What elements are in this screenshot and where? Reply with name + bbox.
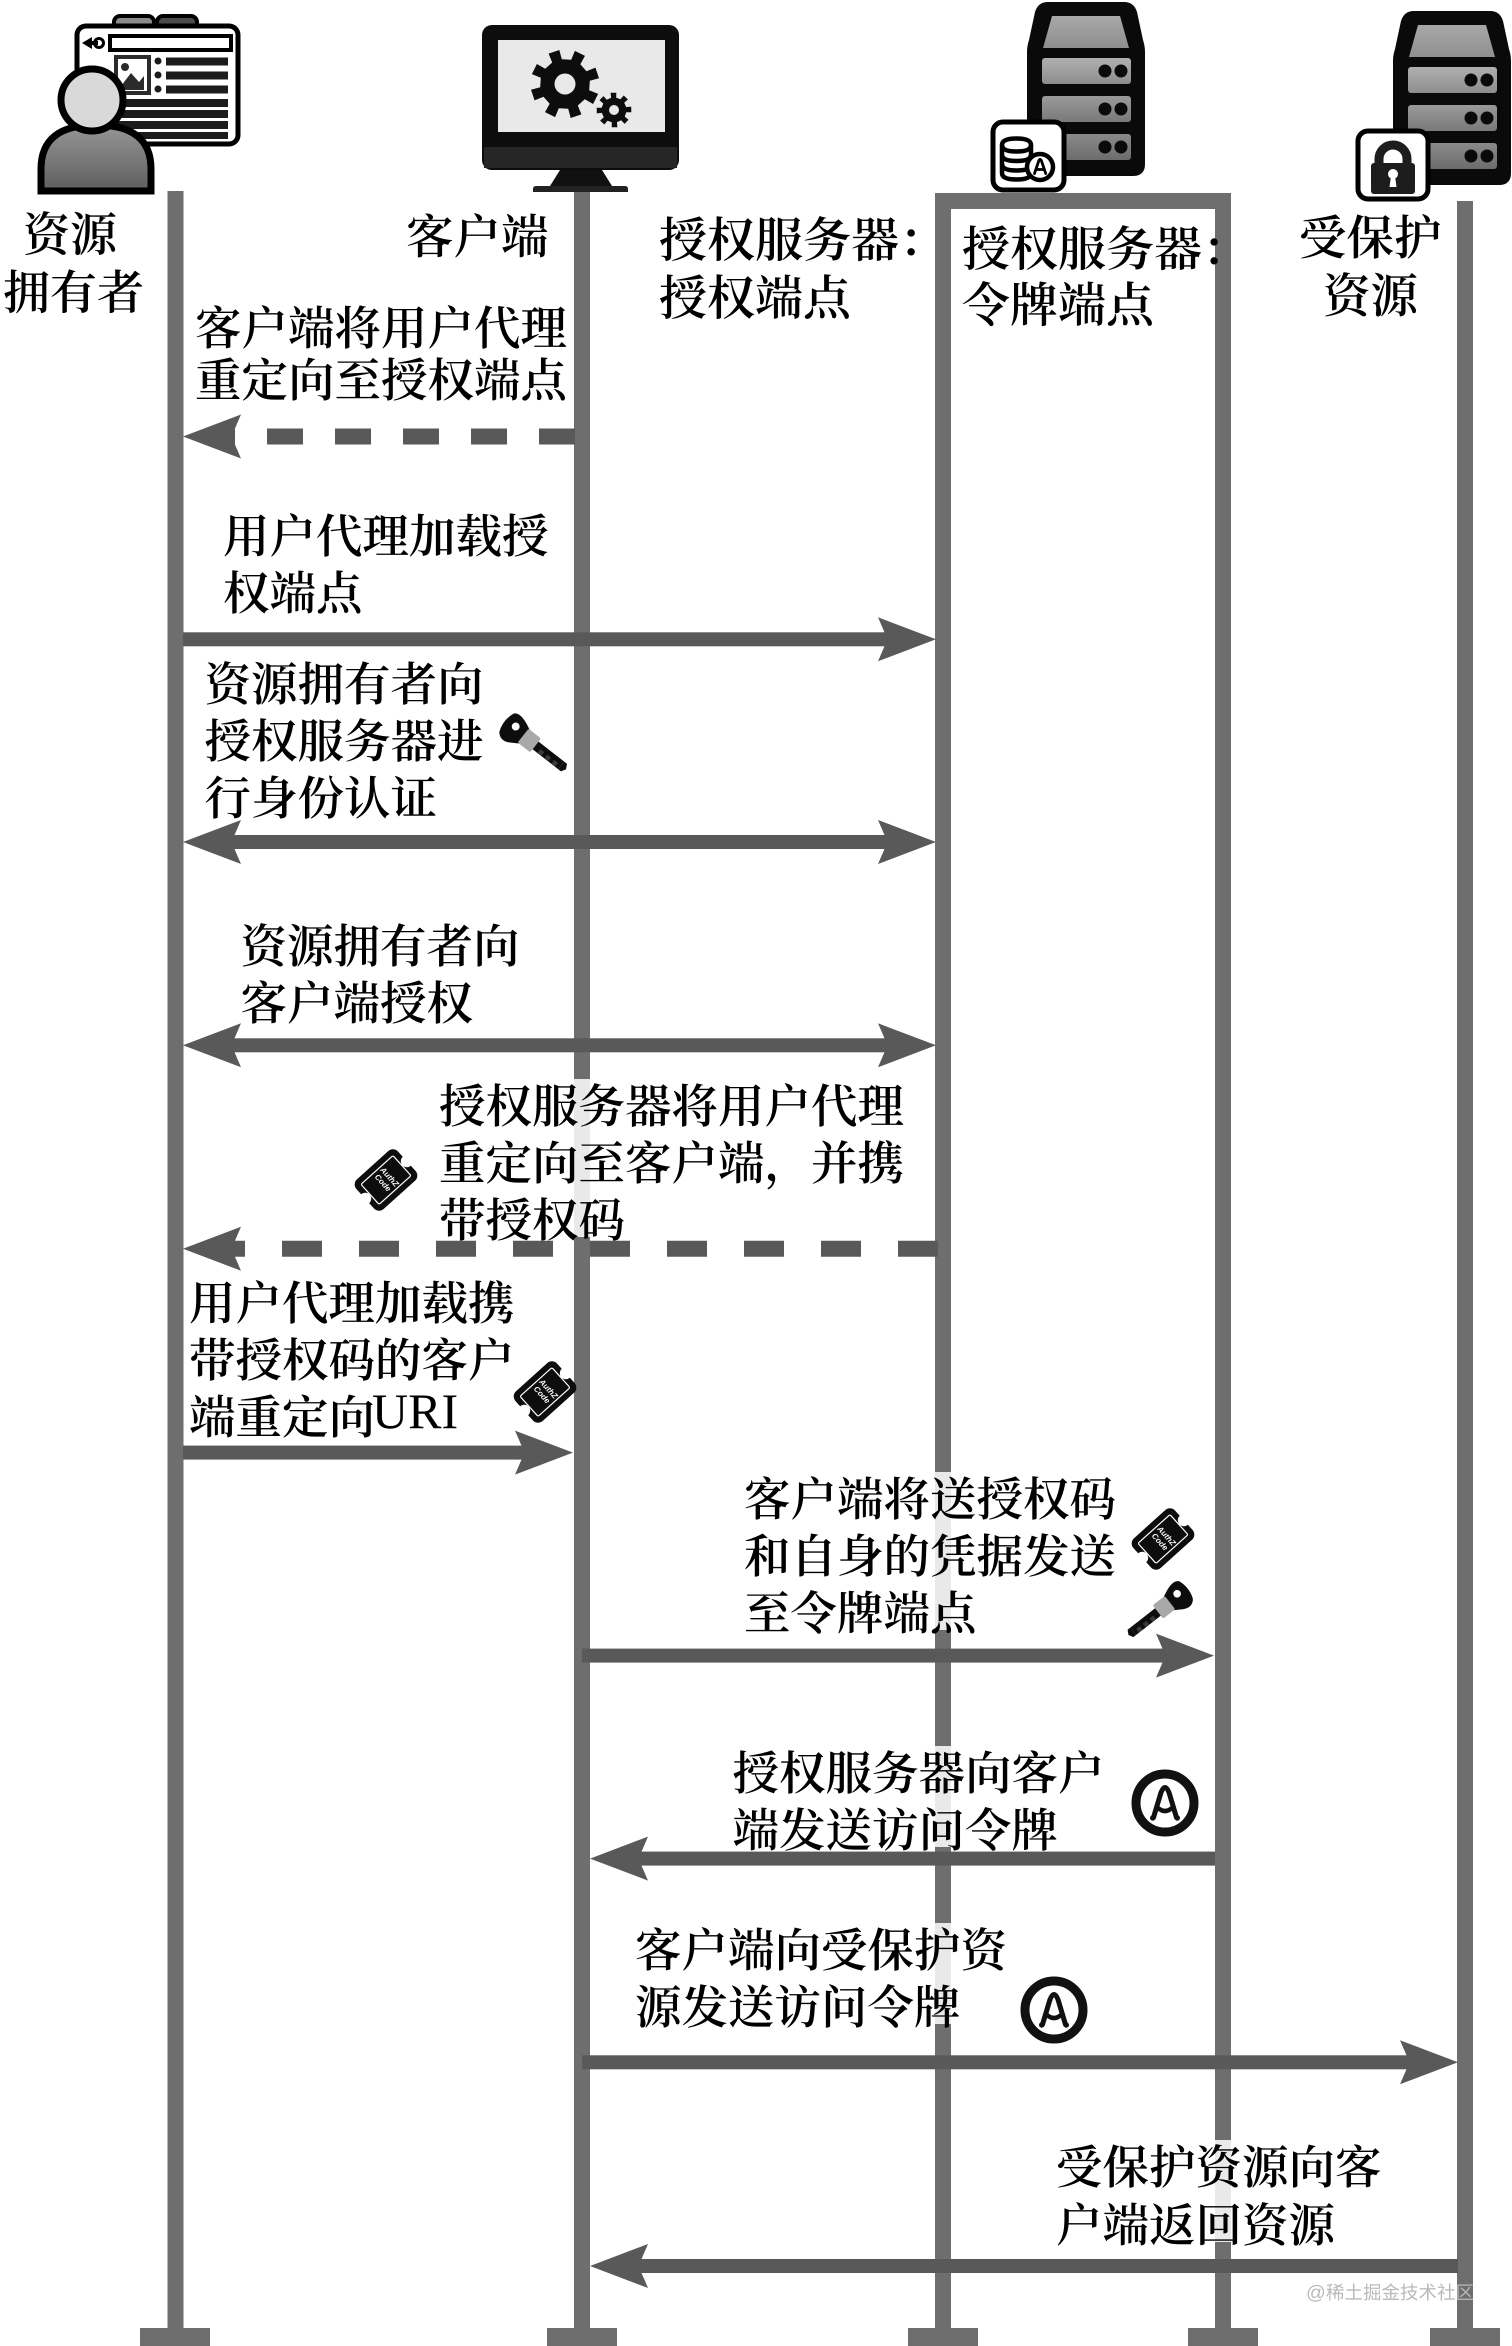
svg-text:URI: URI [372,1383,458,1439]
